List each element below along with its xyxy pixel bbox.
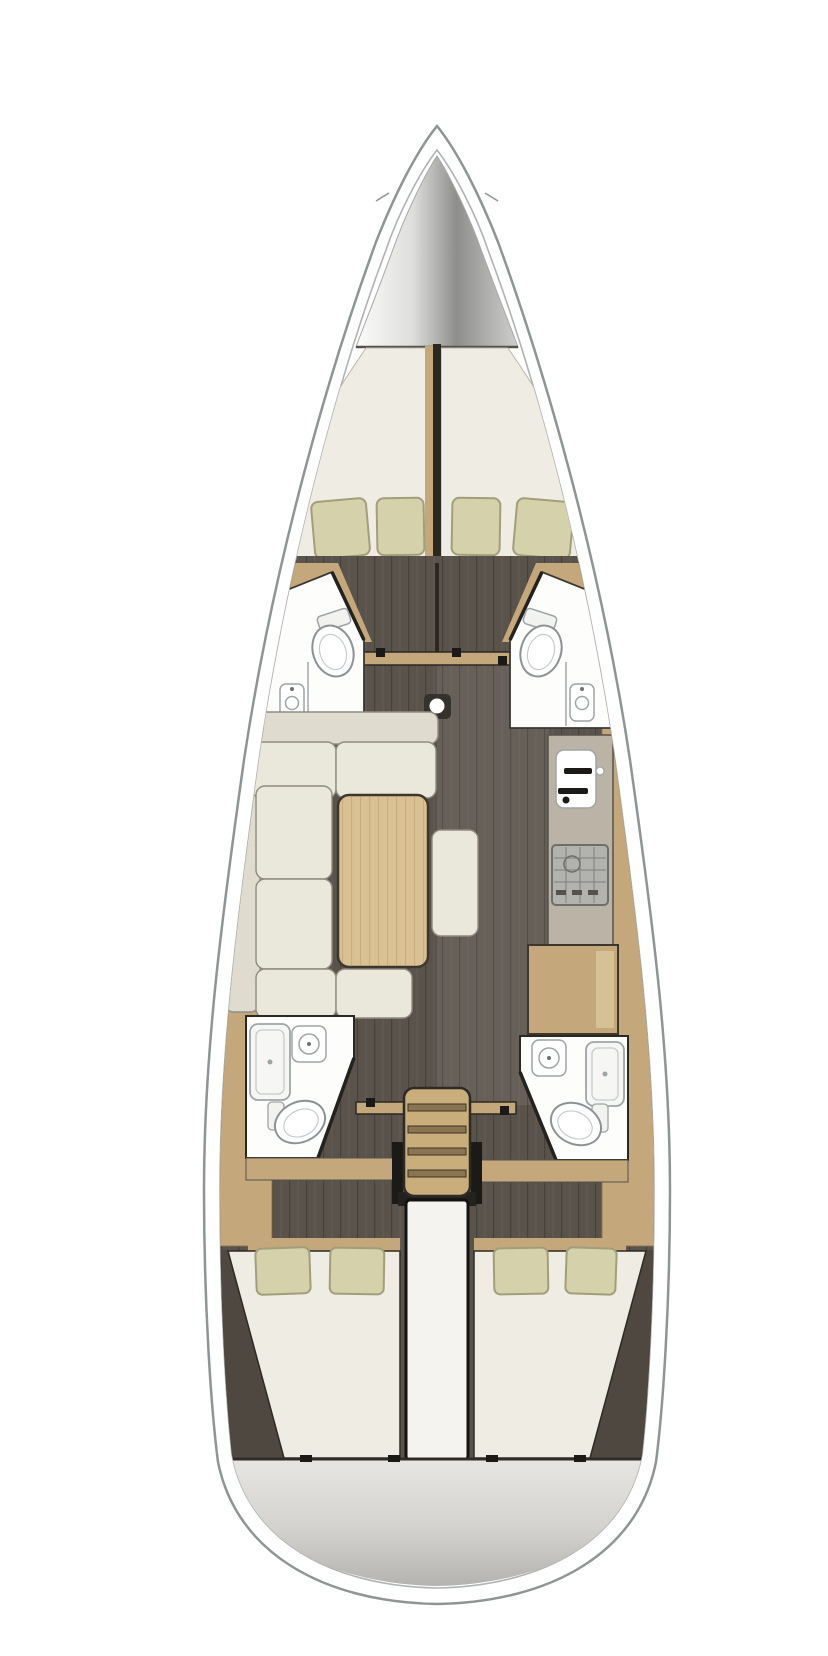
sofa-seat xyxy=(256,786,332,879)
pillow xyxy=(451,498,500,556)
v-berth-forward-cabin xyxy=(252,344,622,565)
pillow xyxy=(311,498,371,560)
companionway-stairs xyxy=(392,1088,482,1206)
galley xyxy=(548,735,613,947)
v-berth-center-bulkhead xyxy=(433,344,441,565)
sink-icon xyxy=(532,1040,566,1076)
aft-cabin-starboard xyxy=(474,1238,668,1458)
pillow xyxy=(565,1247,617,1295)
sofa-seat xyxy=(336,742,436,798)
pillow xyxy=(494,1248,549,1295)
shower-pan-icon xyxy=(250,1024,290,1100)
sofa-back-top xyxy=(248,712,438,744)
transom xyxy=(218,1455,656,1586)
galley-stove xyxy=(552,845,608,905)
chart-table-desk xyxy=(528,945,618,1034)
sofa-seat xyxy=(256,879,332,969)
engine-compartment xyxy=(406,1200,468,1460)
v-berth-center-trim xyxy=(425,346,433,565)
shower-pan-icon xyxy=(586,1042,624,1106)
aft-cabin-port xyxy=(206,1238,400,1458)
sofa-seat xyxy=(336,969,412,1018)
stair-step xyxy=(408,1170,466,1177)
pillow xyxy=(377,498,425,556)
saloon-bench-cushion xyxy=(432,830,478,936)
sink-icon xyxy=(292,1026,326,1062)
aft-deck-band-starboard xyxy=(474,1160,628,1182)
pillow xyxy=(255,1247,311,1295)
sink-icon xyxy=(570,684,594,721)
pillow xyxy=(513,498,575,560)
pillow xyxy=(330,1248,385,1295)
yacht-floorplan-diagram xyxy=(0,0,828,1656)
aft-deck-band-port xyxy=(246,1158,400,1180)
stair-step xyxy=(408,1148,466,1155)
stair-step xyxy=(408,1126,466,1133)
yacht-floorplan-page xyxy=(0,0,828,1656)
stair-step xyxy=(408,1104,466,1111)
sofa-seat xyxy=(256,969,336,1018)
saloon-table xyxy=(338,795,428,967)
